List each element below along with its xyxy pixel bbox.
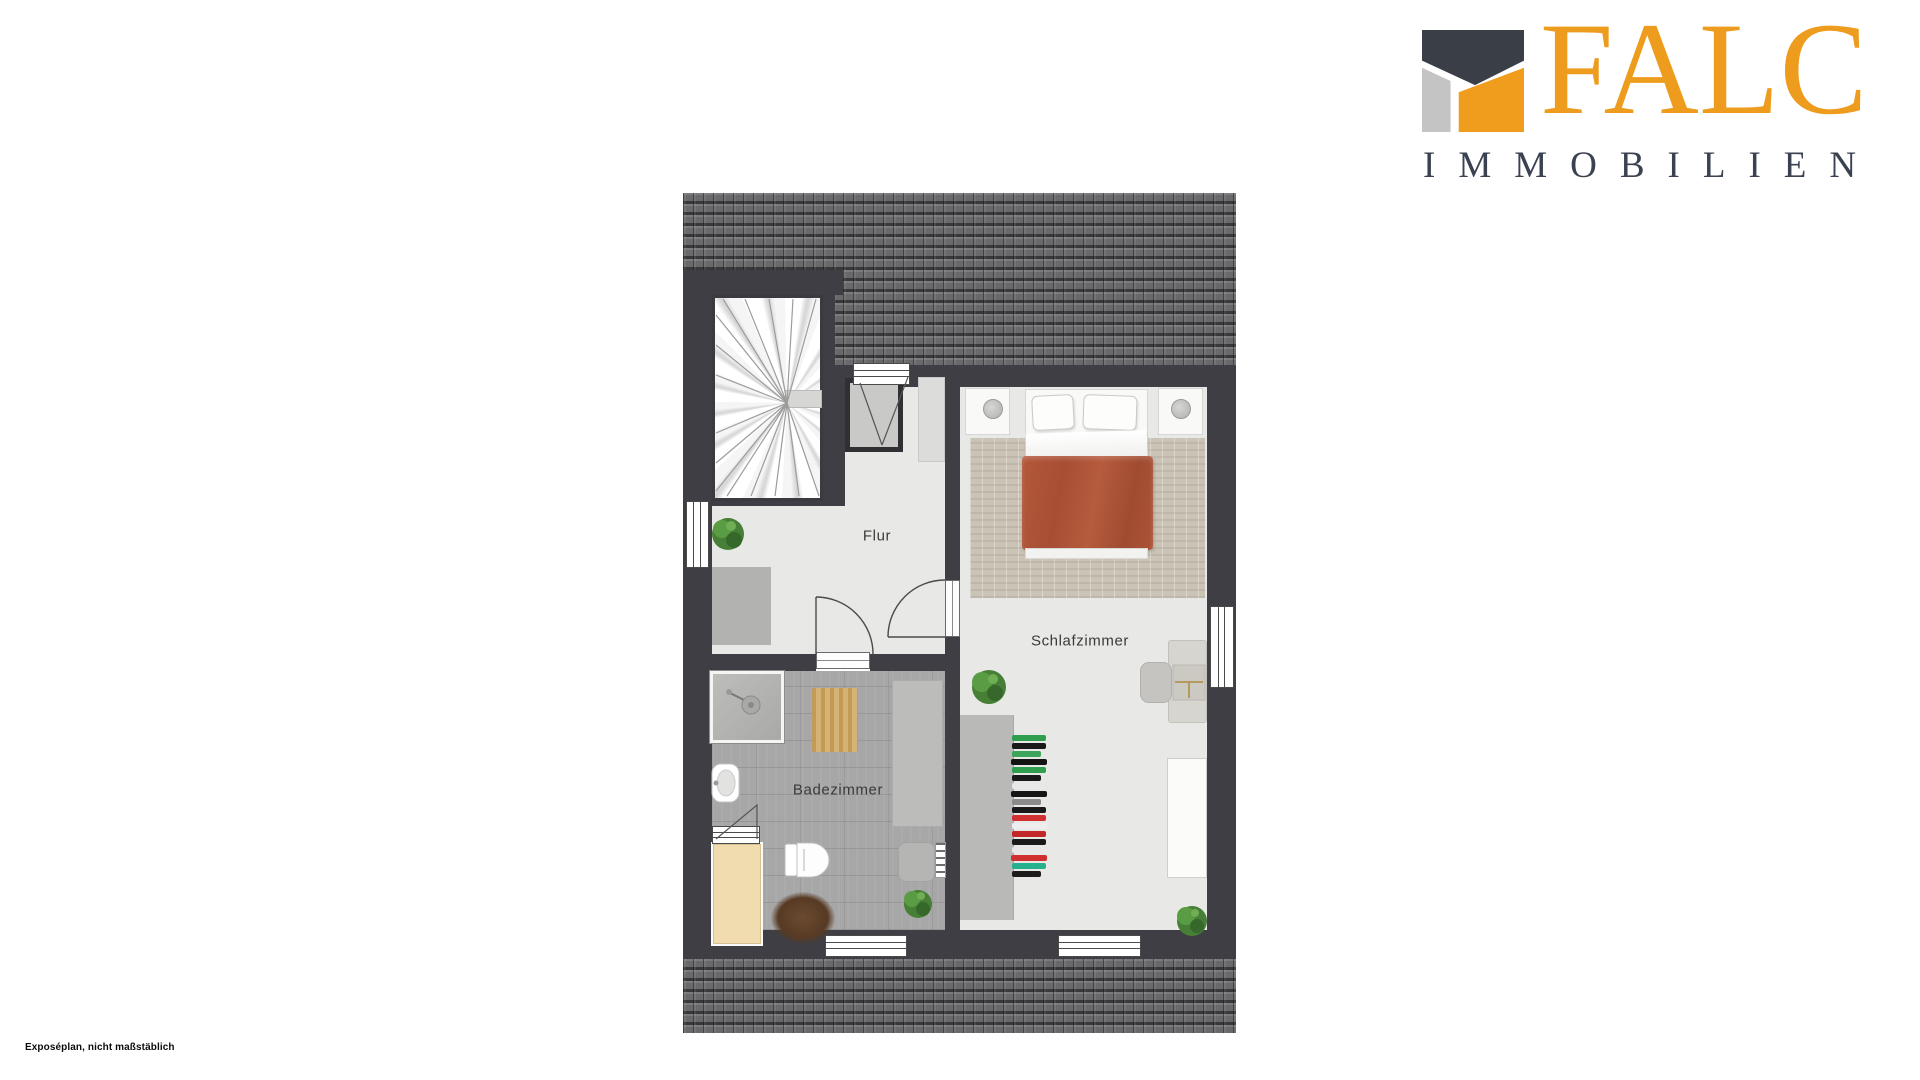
sink-icon xyxy=(712,764,739,802)
logo-subtitle-text: IMMOBILIEN xyxy=(1423,147,1879,184)
door-swing-bathroom xyxy=(816,597,873,654)
plan-vector-overlay xyxy=(683,193,1236,1033)
floor-plan: Flur Schlafzimmer Badezimmer xyxy=(683,193,1236,1033)
logo-brand-text: FALC xyxy=(1540,3,1868,135)
plant-icon xyxy=(972,670,1006,704)
shower-head-icon xyxy=(726,689,760,714)
roof-window-projection xyxy=(860,377,908,445)
toilet-icon xyxy=(785,843,829,877)
exposé-page: Flur Schlafzimmer Badezimmer FALC IMMOBI… xyxy=(0,0,1920,1080)
falc-logo-mark-icon xyxy=(1422,30,1524,132)
casement-swing xyxy=(716,805,757,839)
room-label-schlafzimmer: Schlafzimmer xyxy=(1031,633,1129,650)
room-label-flur: Flur xyxy=(863,528,891,545)
plant-icon xyxy=(1177,906,1207,936)
company-logo: FALC IMMOBILIEN xyxy=(1420,18,1895,188)
plant-icon xyxy=(712,518,744,550)
stair-treads xyxy=(716,299,819,496)
room-label-badezimmer: Badezimmer xyxy=(793,782,883,799)
plant-icon xyxy=(904,890,932,918)
footer-disclaimer: Exposéplan, nicht maßstäblich xyxy=(25,1042,175,1053)
door-swing-bedroom xyxy=(888,580,945,637)
desk-detail xyxy=(1173,665,1205,700)
